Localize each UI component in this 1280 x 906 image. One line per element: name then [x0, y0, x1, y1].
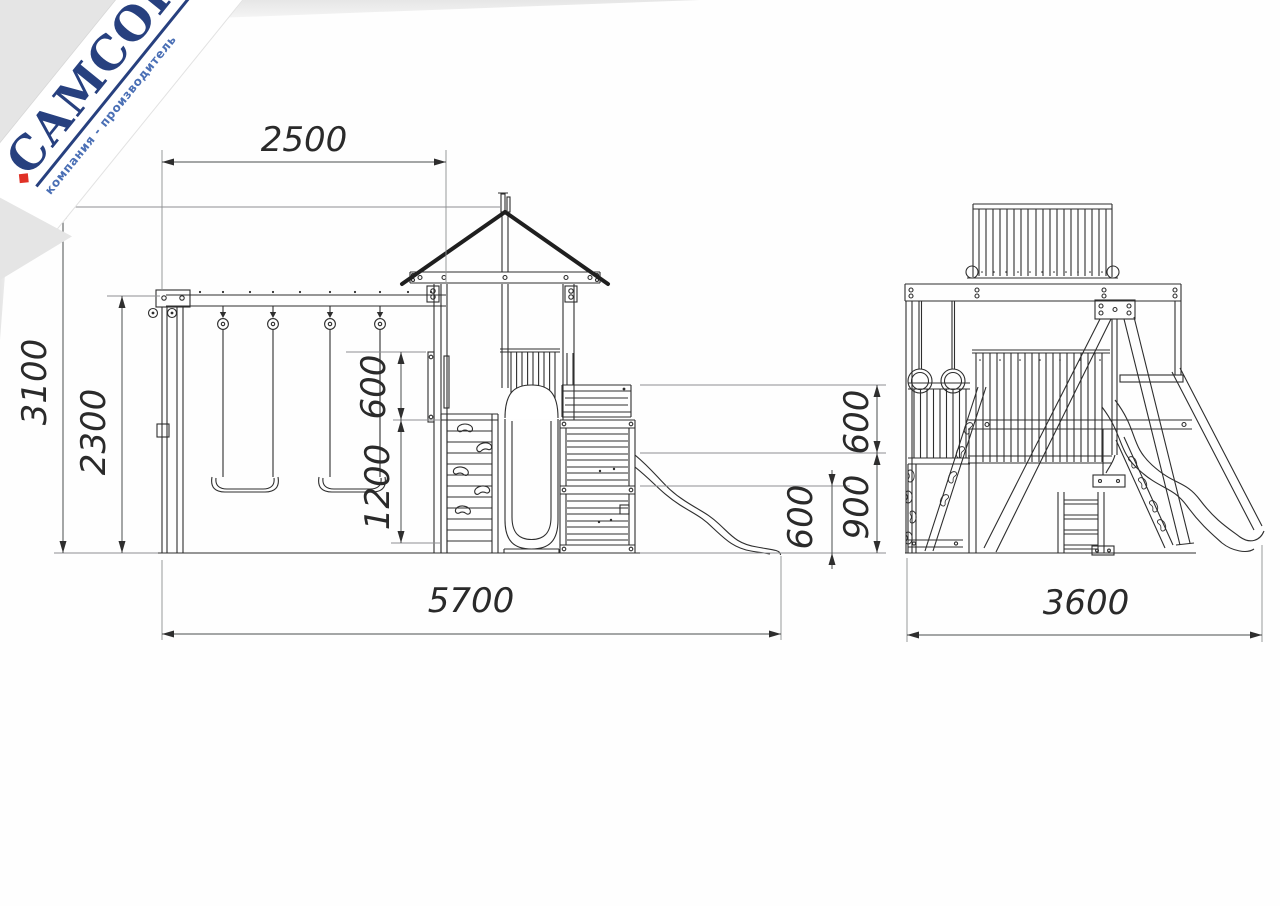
platform-boxes: [560, 353, 635, 553]
dim-tower-lower: 1200: [358, 444, 398, 531]
dim-swing-beam-height: 2300: [74, 389, 114, 476]
climbing-wall: [441, 414, 498, 553]
brand-corner: САМСОН компания - производитель: [0, 0, 720, 360]
dim-platform: 900: [837, 475, 877, 540]
side-left-section: [906, 301, 986, 553]
dim-guard-rail: 600: [837, 390, 877, 455]
tube-slide: [504, 419, 559, 553]
side-ladder: [1058, 429, 1125, 553]
dim-tower-upper: 600: [354, 355, 394, 420]
side-roof: [966, 204, 1119, 278]
dim-length-total: 5700: [428, 581, 515, 621]
swing-seat: [212, 477, 279, 492]
side-railing: [968, 350, 1192, 553]
dim-slide-exit: 600: [781, 485, 821, 550]
dim-depth-total: 3600: [1043, 583, 1130, 623]
side-beam: [905, 284, 1181, 301]
blueprint-page: 2500 3100 2300 600 1200 5700 600 900 600…: [0, 0, 1280, 906]
side-a-frame: [984, 300, 1194, 555]
wave-slide: [635, 455, 781, 555]
logo-red-accent: [19, 173, 29, 183]
side-view: [905, 204, 1264, 555]
